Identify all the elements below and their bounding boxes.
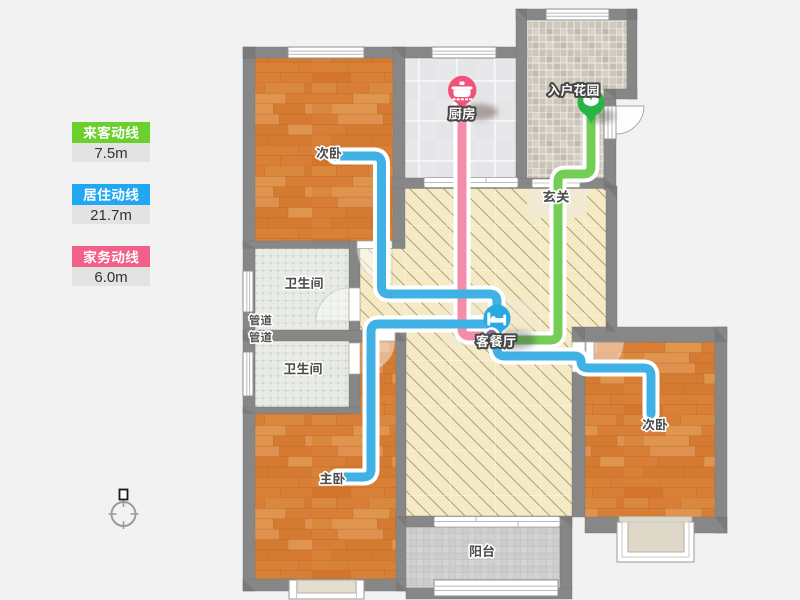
svg-text:6.0m: 6.0m [94,269,127,286]
svg-text:21.7m: 21.7m [90,207,132,224]
svg-text:7.5m: 7.5m [94,145,127,162]
